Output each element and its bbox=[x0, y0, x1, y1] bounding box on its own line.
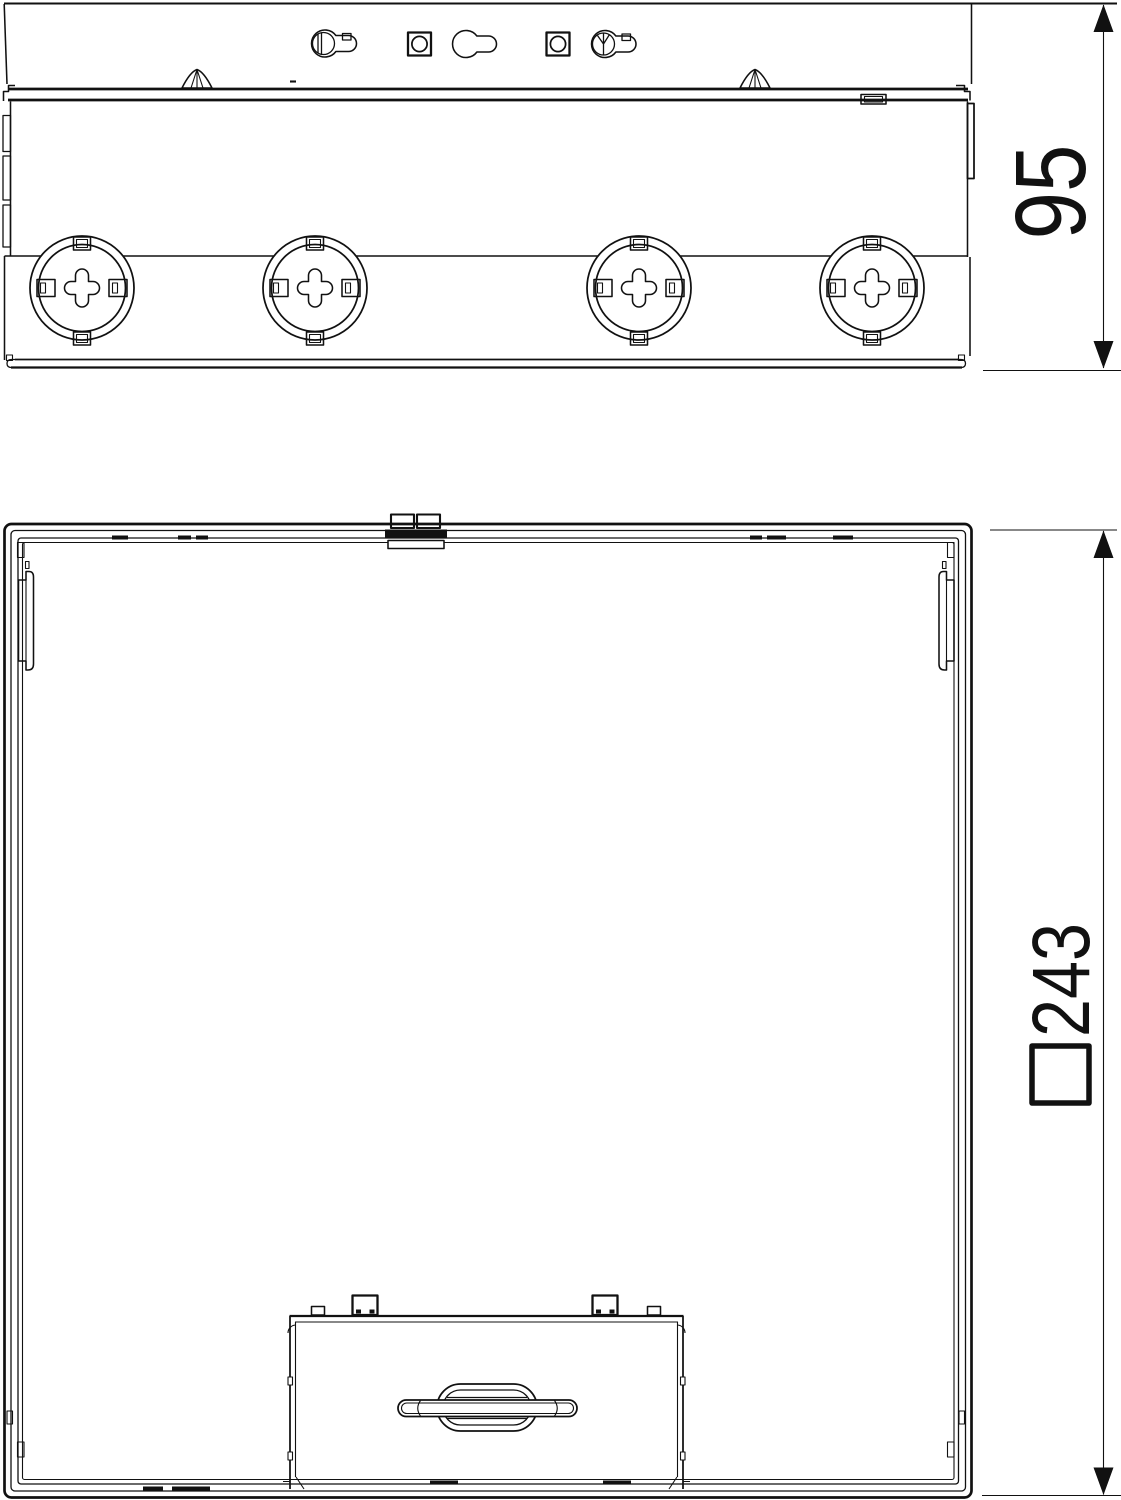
top-latch bbox=[385, 515, 447, 549]
cassette-notch-left bbox=[312, 1307, 325, 1316]
corner-hooks bbox=[7, 543, 965, 1458]
spring-clip-right bbox=[740, 70, 770, 89]
edge-clip bbox=[3, 116, 11, 152]
arrowhead-down-icon bbox=[1094, 1468, 1114, 1496]
keyhole-slot-with-screw-right bbox=[592, 30, 636, 57]
cassette bbox=[283, 1296, 690, 1490]
knockout-2 bbox=[263, 236, 367, 345]
keyhole-slot-with-screw-left bbox=[312, 30, 357, 57]
arrowhead-up-icon bbox=[1094, 5, 1114, 33]
dimension-height-95: 95 bbox=[983, 5, 1121, 371]
knockout-1 bbox=[30, 236, 134, 345]
frame-inner bbox=[18, 538, 959, 1484]
knockout-4 bbox=[820, 236, 924, 345]
cassette-notch-right bbox=[648, 1307, 661, 1316]
plan-view: 243 bbox=[5, 515, 1121, 1498]
handle bbox=[398, 1384, 577, 1431]
frame-markings bbox=[112, 536, 853, 1492]
side-clip-right bbox=[939, 572, 954, 671]
square-hole-2 bbox=[547, 33, 570, 56]
arrowhead-down-icon bbox=[1094, 341, 1114, 369]
drawing-svg: 95 bbox=[0, 0, 1121, 1500]
screw-head-icon bbox=[313, 33, 335, 55]
side-rail bbox=[968, 104, 975, 179]
edge-clip bbox=[3, 205, 11, 247]
mounting-strip bbox=[4, 4, 1118, 102]
arrowhead-up-icon bbox=[1094, 531, 1114, 559]
square-hole-1 bbox=[408, 33, 431, 56]
technical-drawing: 95 bbox=[0, 0, 1121, 1500]
dimension-label-243: 243 bbox=[1016, 923, 1107, 1037]
knockout-3 bbox=[587, 236, 691, 345]
edge-clip bbox=[3, 156, 11, 200]
frame bbox=[5, 524, 972, 1498]
square-symbol-icon bbox=[1032, 1046, 1089, 1103]
side-elevation-view: 95 bbox=[3, 4, 1121, 371]
spring-clip-left bbox=[182, 70, 212, 89]
frame-mid bbox=[11, 531, 966, 1492]
frame-opening bbox=[23, 543, 955, 1480]
frame-outer bbox=[5, 524, 972, 1498]
box-body bbox=[3, 95, 974, 368]
keyhole-slot-center bbox=[453, 30, 497, 57]
dimension-size-243: 243 bbox=[982, 530, 1121, 1496]
side-clip-left bbox=[19, 572, 34, 671]
dimension-label-95: 95 bbox=[995, 145, 1107, 240]
